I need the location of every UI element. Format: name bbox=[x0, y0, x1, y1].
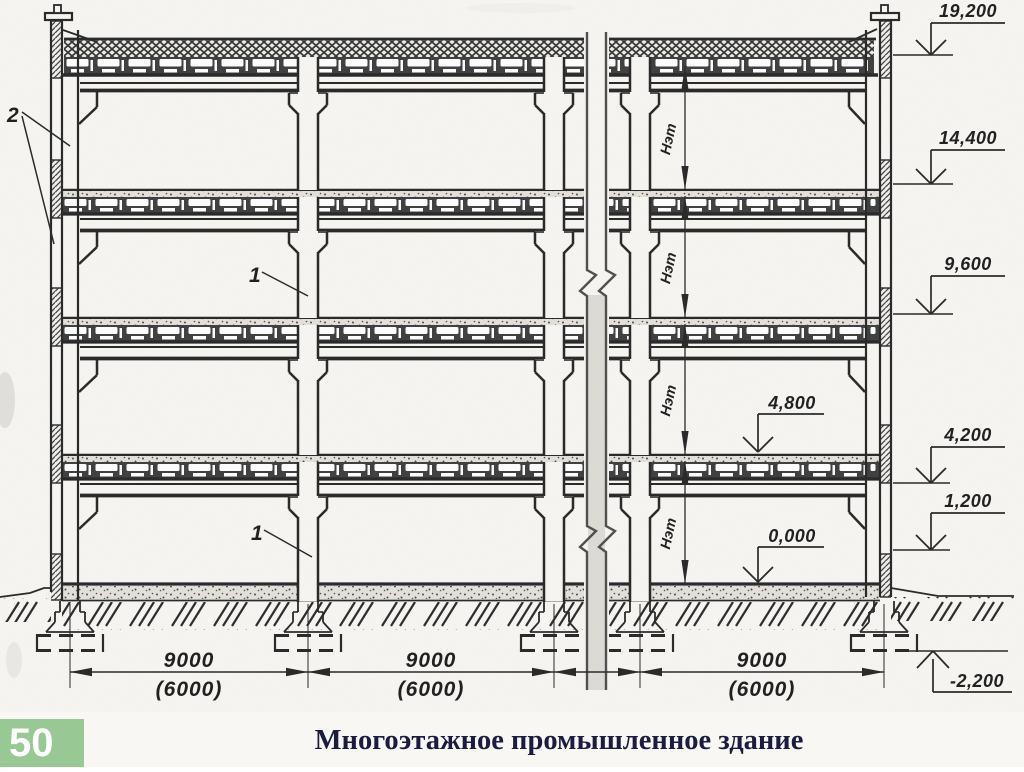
svg-text:Многоэтажное промышленное здан: Многоэтажное промышленное здание bbox=[315, 725, 804, 756]
svg-text:50: 50 bbox=[9, 721, 54, 765]
